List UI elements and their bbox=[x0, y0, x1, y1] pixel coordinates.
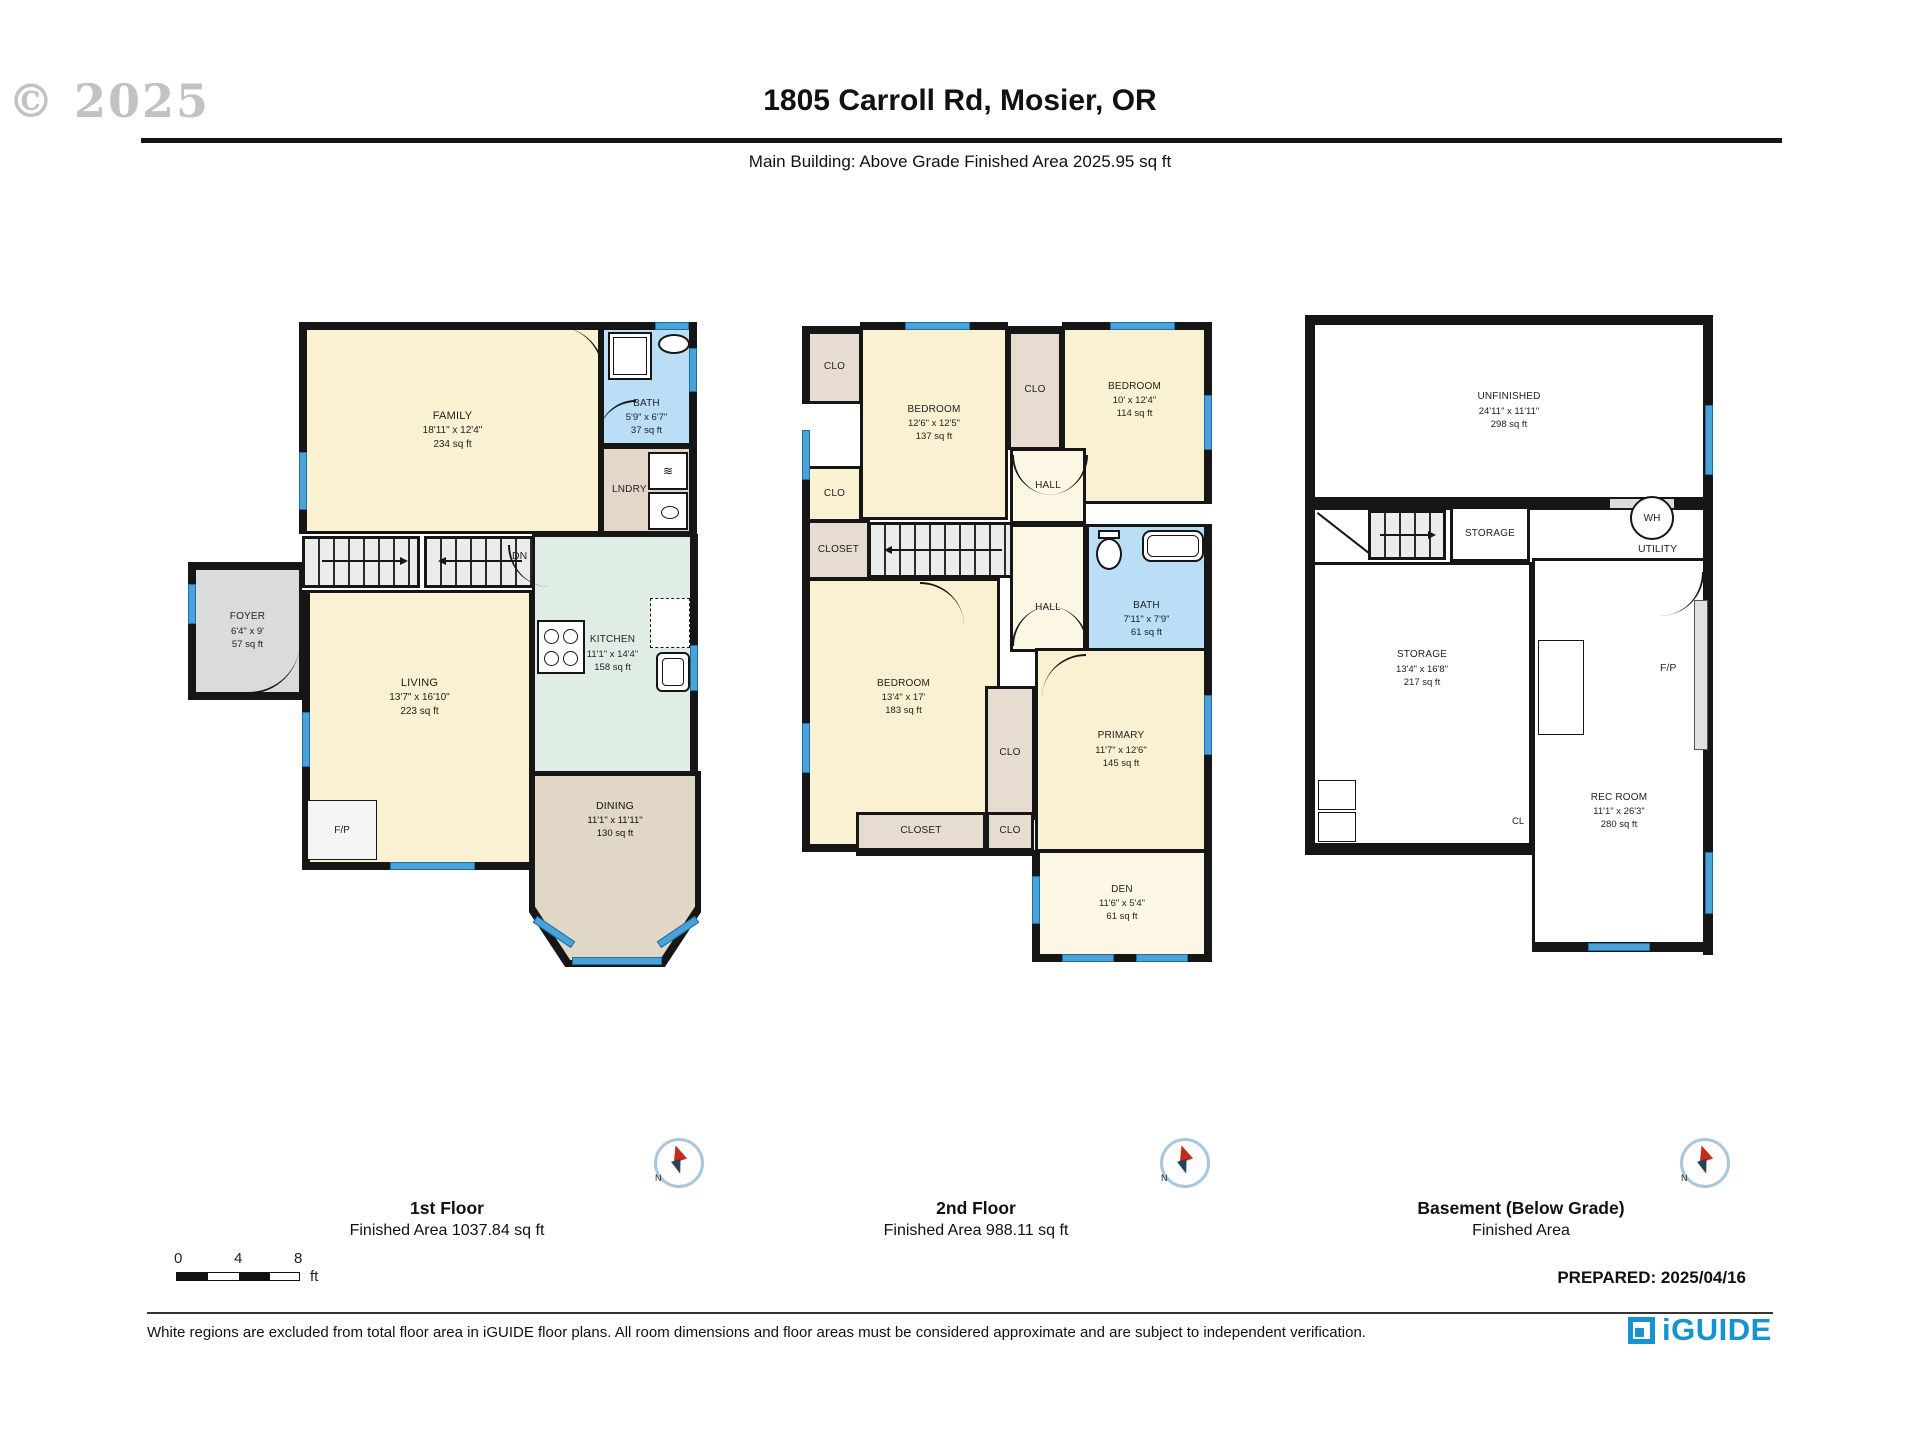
scale-unit: ft bbox=[310, 1268, 318, 1285]
window bbox=[572, 957, 662, 965]
fireplace-label-basement: F/P bbox=[1660, 662, 1676, 674]
stair-arrow-line bbox=[1380, 534, 1430, 536]
room-foyer: FOYER 6'4" x 9' 57 sq ft bbox=[188, 562, 302, 700]
room-unfinished: UNFINISHED 24'11" x 11'11" 298 sq ft bbox=[1305, 315, 1713, 507]
room-bedroom-3: BEDROOM 13'4" x 17' 183 sq ft bbox=[802, 578, 1000, 852]
room-storage-small: STORAGE bbox=[1450, 506, 1530, 562]
room-dims: 11'1" x 11'11" bbox=[540, 815, 690, 827]
window bbox=[905, 322, 970, 330]
room-label: LNDRY bbox=[612, 484, 647, 497]
window bbox=[1110, 322, 1175, 330]
footer-rule bbox=[147, 1312, 1773, 1314]
toilet-tank-icon bbox=[1098, 530, 1120, 539]
room-area: 114 sq ft bbox=[1117, 408, 1153, 420]
room-area: 130 sq ft bbox=[540, 828, 690, 840]
compass-icon: N bbox=[654, 1138, 704, 1188]
room-label: CLO bbox=[824, 488, 845, 501]
room-area: 137 sq ft bbox=[916, 431, 952, 443]
floor-name: 1st Floor bbox=[237, 1198, 657, 1219]
room-label: CLOSET bbox=[900, 825, 941, 838]
water-heater-label: WH bbox=[1644, 513, 1661, 524]
washer-icon bbox=[648, 492, 688, 530]
room-dims: 13'4" x 17' bbox=[882, 692, 925, 704]
stair-arrow-line bbox=[892, 549, 1002, 551]
room-area: 298 sq ft bbox=[1491, 419, 1527, 431]
window bbox=[390, 862, 475, 870]
window bbox=[299, 452, 307, 510]
room-label: BATH bbox=[1133, 600, 1160, 613]
shower-icon bbox=[608, 332, 652, 380]
window bbox=[302, 712, 310, 767]
stair-arrow bbox=[438, 557, 446, 565]
sink-icon bbox=[658, 334, 690, 354]
room-closet-bottom: CLOSET bbox=[856, 812, 986, 856]
room-label: CLOSET bbox=[818, 544, 859, 557]
stair-winder-line bbox=[1317, 512, 1370, 554]
room-area: 234 sq ft bbox=[433, 439, 471, 452]
floor-caption-2: 2nd Floor Finished Area 988.11 sq ft bbox=[766, 1198, 1186, 1240]
window bbox=[1136, 954, 1188, 962]
compass-icon: N bbox=[1160, 1138, 1210, 1188]
room-closet: CLO bbox=[802, 466, 862, 522]
page-title: 1805 Carroll Rd, Mosier, OR bbox=[0, 84, 1920, 118]
bathtub-icon bbox=[1142, 530, 1204, 562]
room-area: 61 sq ft bbox=[1131, 627, 1162, 639]
room-label: STORAGE bbox=[1465, 528, 1515, 541]
shelf-icon bbox=[1318, 780, 1356, 810]
dryer-icon: ≋ bbox=[648, 452, 688, 490]
window bbox=[802, 723, 810, 773]
room-label: DINING bbox=[540, 800, 690, 813]
room-label: FOYER bbox=[230, 611, 265, 624]
room-closet-small-bottom: CLO bbox=[986, 812, 1034, 856]
floor-caption-1: 1st Floor Finished Area 1037.84 sq ft bbox=[237, 1198, 657, 1240]
window bbox=[802, 430, 810, 480]
room-bedroom-1: BEDROOM 12'6" x 12'5" 137 sq ft bbox=[860, 322, 1008, 520]
room-dims: 7'11" x 7'9" bbox=[1123, 614, 1169, 626]
floor-area: Finished Area 988.11 sq ft bbox=[766, 1222, 1186, 1240]
room-label: BATH bbox=[633, 398, 660, 411]
room-label: KITCHEN bbox=[590, 634, 635, 647]
room-label: REC ROOM bbox=[1591, 792, 1648, 805]
room-area: 183 sq ft bbox=[885, 705, 921, 717]
stair-arrow bbox=[400, 557, 408, 565]
header-rule bbox=[141, 138, 1782, 143]
room-dims: 13'7" x 16'10" bbox=[389, 692, 449, 705]
room-dims: 11'1" x 26'3" bbox=[1593, 806, 1644, 818]
stair-arrow-line bbox=[322, 560, 402, 562]
room-label: PRIMARY bbox=[1098, 730, 1145, 743]
room-area: 223 sq ft bbox=[400, 706, 438, 719]
room-closet: CLO bbox=[802, 326, 862, 404]
room-dims: 12'6" x 12'5" bbox=[908, 418, 960, 430]
floor-name: Basement (Below Grade) bbox=[1311, 1198, 1731, 1219]
iguide-logo-text: iGUIDE bbox=[1662, 1312, 1772, 1348]
compass-needle bbox=[1177, 1159, 1191, 1175]
utility-label: UTILITY bbox=[1638, 543, 1677, 555]
window bbox=[655, 322, 689, 330]
stair-arrow bbox=[884, 546, 892, 554]
room-label: LIVING bbox=[401, 677, 438, 691]
room-dims: 11'1" x 14'4" bbox=[587, 649, 638, 661]
scale-tick-8: 8 bbox=[294, 1250, 302, 1267]
room-label: STORAGE bbox=[1397, 649, 1447, 662]
room-area: 217 sq ft bbox=[1404, 677, 1440, 689]
window bbox=[1204, 395, 1212, 450]
furnace-icon bbox=[1538, 640, 1584, 735]
floor-name: 2nd Floor bbox=[766, 1198, 1186, 1219]
chimney bbox=[1694, 600, 1708, 750]
room-label: UNFINISHED bbox=[1477, 391, 1540, 404]
compass-icon: N bbox=[1680, 1138, 1730, 1188]
room-label: BEDROOM bbox=[907, 404, 960, 417]
page-subtitle: Main Building: Above Grade Finished Area… bbox=[0, 152, 1920, 172]
room-label: CLO bbox=[999, 825, 1020, 838]
room-label: CLO bbox=[824, 361, 845, 374]
room-closet-stair: CLOSET bbox=[802, 520, 870, 580]
fireplace: F/P bbox=[307, 800, 377, 860]
water-heater-icon: WH bbox=[1630, 496, 1674, 540]
room-dims: 24'11" x 11'11" bbox=[1479, 406, 1540, 418]
room-closet-vertical: CLO bbox=[985, 686, 1035, 820]
window bbox=[188, 584, 196, 624]
compass-n-label: N bbox=[1161, 1173, 1168, 1183]
window bbox=[1588, 943, 1650, 951]
room-area: 158 sq ft bbox=[594, 662, 630, 674]
room-dims: 18'11" x 12'4" bbox=[423, 425, 483, 438]
refrigerator-icon bbox=[650, 598, 690, 648]
room-dims: 6'4" x 9' bbox=[231, 626, 264, 638]
room-area: 61 sq ft bbox=[1106, 911, 1137, 923]
room-closet-mid: CLO bbox=[1008, 326, 1062, 450]
floor-plan-document: © 2025 1805 Carroll Rd, Mosier, OR Main … bbox=[0, 0, 1920, 1440]
window bbox=[1062, 954, 1114, 962]
room-area: 145 sq ft bbox=[1103, 758, 1139, 770]
toilet-icon bbox=[1096, 538, 1122, 570]
cl-label: CL bbox=[1512, 816, 1524, 827]
room-label: FAMILY bbox=[433, 410, 473, 424]
window bbox=[1705, 405, 1713, 475]
room-label: DEN bbox=[1111, 884, 1133, 897]
kitchen-sink-icon bbox=[656, 652, 690, 692]
room-dims: 10' x 12'4" bbox=[1113, 395, 1156, 407]
prepared-date: PREPARED: 2025/04/16 bbox=[1450, 1268, 1746, 1288]
room-label: CLO bbox=[1024, 384, 1045, 397]
floor-caption-3: Basement (Below Grade) Finished Area bbox=[1311, 1198, 1731, 1240]
room-dining: DINING 11'1" x 11'11" 130 sq ft bbox=[540, 800, 690, 840]
wall bbox=[1305, 845, 1542, 855]
room-area: 280 sq ft bbox=[1601, 819, 1637, 831]
stair-arrow bbox=[1428, 531, 1436, 539]
scale-tick-4: 4 bbox=[234, 1250, 242, 1267]
room-dims: 13'4" x 16'8" bbox=[1396, 664, 1448, 676]
room-label: CLO bbox=[999, 747, 1020, 760]
compass-needle bbox=[671, 1159, 685, 1175]
room-den: DEN 11'6" x 5'4" 61 sq ft bbox=[1032, 850, 1212, 962]
iguide-logo-icon bbox=[1628, 1317, 1655, 1344]
window bbox=[690, 645, 698, 691]
room-dims: 11'6" x 5'4" bbox=[1099, 898, 1145, 910]
scale-tick-0: 0 bbox=[174, 1250, 182, 1267]
compass-n-label: N bbox=[1681, 1173, 1688, 1183]
stove-icon bbox=[537, 620, 585, 674]
scale-bar bbox=[176, 1272, 300, 1281]
floor-area: Finished Area 1037.84 sq ft bbox=[237, 1222, 657, 1240]
floor-area: Finished Area bbox=[1311, 1222, 1731, 1240]
iguide-logo: iGUIDE bbox=[1628, 1312, 1772, 1348]
fireplace-label: F/P bbox=[334, 825, 350, 836]
room-rec-room: REC ROOM 11'1" x 26'3" 280 sq ft bbox=[1532, 558, 1713, 952]
window bbox=[1705, 852, 1713, 914]
window bbox=[1204, 695, 1212, 755]
compass-n-label: N bbox=[655, 1173, 662, 1183]
compass-needle bbox=[1697, 1159, 1711, 1175]
window bbox=[1032, 876, 1040, 924]
room-dims: 11'7" x 12'6" bbox=[1095, 745, 1146, 757]
footer-disclaimer: White regions are excluded from total fl… bbox=[147, 1324, 1447, 1341]
room-label: BEDROOM bbox=[877, 678, 930, 691]
shelf-icon bbox=[1318, 812, 1356, 842]
room-label: BEDROOM bbox=[1108, 381, 1161, 394]
window bbox=[689, 348, 697, 392]
